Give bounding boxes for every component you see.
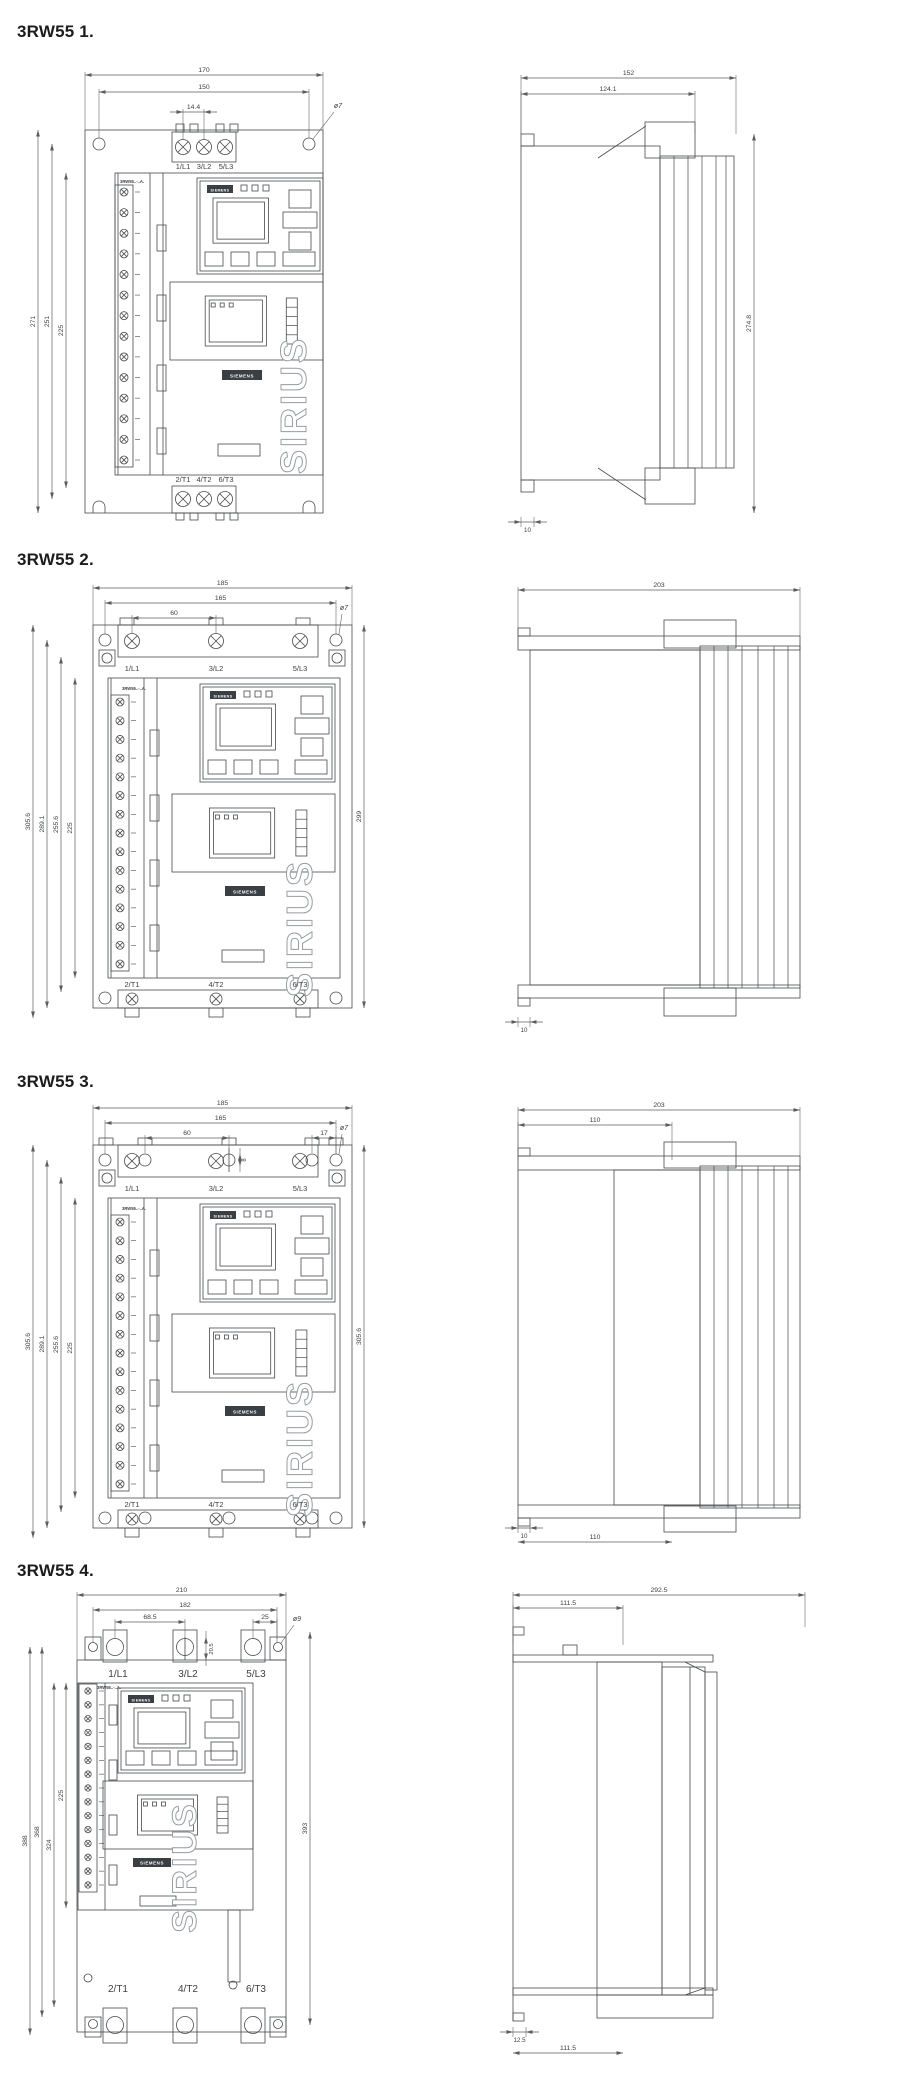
dimension-arrow [362,1145,366,1152]
dim-label: 289.1 [39,1335,46,1352]
dimension-arrow [346,1106,353,1110]
dimension-arrow [689,92,696,96]
dimension-arrow [513,2051,520,2055]
drawing-line [598,468,646,500]
line-terminal-label: 5/L3 [293,664,308,673]
terminal-cover [597,1995,713,2018]
dimension-arrow [31,1532,35,1539]
mounting-hole [139,1512,151,1524]
siemens-badge-label: SIEMENS [214,1214,233,1218]
dimension-arrow [526,2030,533,2034]
status-led [173,1695,179,1701]
status-led [162,1695,168,1701]
dimension-arrow [59,1177,63,1184]
status-led [255,1211,261,1217]
side-lip [513,1627,524,1635]
bottom-slot [222,950,264,962]
device-type-label: 3RW55..-..A. [120,179,144,184]
front-view: 3RW55..-..A.SIEMENSSIEMENSSIRIUS1/L13/L2… [25,580,366,1018]
module-led [220,303,224,307]
dimension-arrow [515,520,522,524]
function-key [208,1280,226,1294]
line-terminal-label: 5/L3 [293,1184,308,1193]
dimension-arrow [666,1540,673,1544]
dimension-arrow [223,1136,230,1140]
dimension-arrow [31,625,35,632]
function-key [205,1751,237,1765]
din-clip [109,1815,117,1835]
status-led [241,185,247,191]
dimension-arrow [85,73,92,77]
section-3rw55-1: 3RW55 1. 3RW55..-..A.SIEMENSSIEMENSSIRIU… [0,20,900,540]
mounting-hole [223,1512,235,1524]
dim-label: 111.5 [560,2045,576,2052]
status-led [244,1211,250,1217]
dimension-arrow [59,657,63,664]
mounting-hole [99,634,111,646]
status-led [266,1211,272,1217]
dimension-arrow [36,130,40,137]
function-key [295,1280,327,1294]
dimension-arrow [31,1012,35,1019]
mounting-hole [102,1173,112,1183]
hole-diameter-label: ø9 [293,1616,301,1623]
dimension-arrow [145,1136,152,1140]
siemens-badge-label: SIEMENS [140,1860,164,1865]
front-view: 3RW55..-..A.SIEMENSSIEMENSSIRIUS1/L13/L2… [25,1100,366,1538]
dimension-arrow [799,1593,806,1597]
display-screen-inner [220,708,271,746]
dimension-arrow [518,1123,525,1127]
nav-button [295,1238,329,1254]
siemens-badge-label: SIEMENS [233,889,257,894]
dim-label: 165 [215,595,227,602]
load-terminal-label: 4/T2 [178,1984,198,1995]
nav-button [301,1258,323,1276]
terminal-tab [125,1528,139,1537]
load-terminal-label: 6/T3 [246,1984,266,1995]
mounting-notch [303,501,315,513]
dim-label: 124.1 [599,86,616,93]
load-terminal-label: 4/T2 [196,475,211,484]
module-led [153,1802,157,1806]
siemens-badge-label: SIEMENS [233,1409,257,1414]
vent-slider [217,1797,228,1833]
dim-label: 14.4 [187,104,200,111]
terminal-tab [296,1528,310,1537]
dim-label: 255.6 [53,816,60,833]
side-view: 20310 [505,582,800,1034]
dimension-arrow [530,1020,537,1024]
mounting-hole [84,1974,92,1982]
dimension-arrow [93,1608,100,1612]
siemens-badge-label: SIEMENS [230,373,254,378]
nav-button [301,738,323,756]
dimension-arrow [59,1506,63,1513]
dimension-arrow [64,1683,68,1690]
module-led [224,815,228,819]
side-lip [518,628,530,636]
line-terminal-label: 5/L3 [219,162,234,171]
mounting-hole [332,1173,342,1183]
dimension-arrow [362,1522,366,1529]
dim-label: 20.5 [209,1643,215,1654]
dimension-arrow [105,1121,112,1125]
function-key [205,252,223,266]
hmi-panel-frame [200,181,320,271]
technical-drawing: 3RW55..-..A.SIEMENSSIEMENSSIRIUS1/L13/L2… [0,20,900,540]
dim-label: 12.5 [513,2037,526,2044]
dimension-arrow [752,507,756,514]
status-led [184,1695,190,1701]
mounting-hole [245,2017,262,2034]
module-led [215,815,219,819]
heatsink [700,1166,800,1508]
dim-label: 203 [653,582,665,589]
dim-label: 299 [356,811,363,823]
dim-label: 225 [58,1790,65,1802]
terminal-tab [176,513,184,520]
line-terminal-label: 3/L2 [209,664,224,673]
status-led [244,691,250,697]
siemens-badge-label: SIEMENS [211,188,230,192]
sirius-logo: SIRIUS [279,1379,320,1517]
sirius-logo: SIRIUS [279,859,320,997]
din-clip [150,1380,159,1406]
corner-tab [270,2017,286,2037]
line-terminal-label: 3/L2 [197,162,212,171]
function-key [260,1280,278,1294]
dimension-arrow [330,1121,337,1125]
dimension-arrow [50,493,54,500]
function-key [178,1751,196,1765]
mounting-hole [177,2017,194,2034]
dim-label: 368 [34,1826,41,1838]
cable-channel [228,1910,240,1982]
display-screen-inner [217,202,264,239]
drawing-line [598,126,646,158]
dim-label: 60 [170,610,178,617]
load-terminal-label: 2/T1 [175,475,190,484]
terminal-tab [190,513,198,520]
siemens-badge-label: SIEMENS [214,694,233,698]
module-led [211,303,215,307]
rear-rail [705,1672,717,1990]
side-view: 152124.1274.810 [508,70,756,534]
line-terminal-label: 1/L1 [125,664,140,673]
device-type-label: 3RW55..-..A. [122,686,146,691]
dim-label: 203 [653,1102,665,1109]
display-screen [216,1224,275,1270]
module-led [229,303,233,307]
terminal-cover [664,1506,736,1532]
function-key [257,252,275,266]
mounting-hole [102,653,112,663]
dimension-arrow [177,110,184,114]
dimension-arrow [512,1526,519,1530]
status-led [255,691,261,697]
display-screen [213,198,268,243]
terminal-tab [296,1008,310,1017]
side-body [521,146,660,480]
din-clip [157,428,166,454]
dimension-arrow [513,1593,520,1597]
function-key [295,760,327,774]
mounting-hole [330,1154,342,1166]
terminal-cover [645,122,695,158]
drawing-line [685,1988,705,1995]
leader-line [281,1625,294,1643]
dimension-arrow [330,601,337,605]
nav-button [289,232,311,250]
dim-label: 305.6 [25,1333,32,1350]
module-led [233,1335,237,1339]
load-terminal-label: 2/T1 [124,980,139,989]
dim-label: 111.5 [560,1600,576,1607]
dimension-arrow [45,1160,49,1167]
display-screen-inner [138,1712,186,1744]
function-key [234,760,252,774]
dimension-arrow [40,2011,44,2018]
section-3rw55-4: 3RW55 4. 3RW55..-..A.SIEMENSSIEMENSSIRIU… [0,1545,900,2088]
sirius-logo: SIRIUS [273,336,314,474]
load-terminal-label: 6/T3 [292,1500,307,1509]
mounting-hole [330,992,342,1004]
corner-bracket [329,1170,345,1186]
dimension-arrow [308,2019,312,2026]
dim-label: 152 [623,70,635,77]
dimension-arrow [31,1145,35,1152]
dimension-arrow [317,73,324,77]
mounting-hole [107,1639,124,1656]
function-key [231,252,249,266]
dimension-arrow [312,1136,319,1140]
module-led [224,1335,228,1339]
mounting-hole [99,1512,111,1524]
dimension-arrow [362,1002,366,1009]
bottom-slot [222,1470,264,1482]
dimension-arrow [28,2029,32,2036]
dim-label: 185 [217,1100,229,1107]
load-terminal-label: 4/T2 [208,1500,223,1509]
corner-tab [85,2017,101,2037]
technical-drawing: 3RW55..-..A.SIEMENSSIEMENSSIRIUS1/L13/L2… [0,1060,900,1545]
dimension-arrow [204,110,211,114]
front-view: 3RW55..-..A.SIEMENSSIEMENSSIRIUS1/L13/L2… [22,1587,312,2043]
dimension-arrow [45,1522,49,1529]
corner-bracket [99,1170,115,1186]
dimension-arrow [513,1606,520,1610]
dim-label: 170 [198,67,210,74]
dim-label: 305.6 [25,813,32,830]
dimension-arrow [518,1108,525,1112]
dimension-arrow [99,90,106,94]
module-led [233,815,237,819]
dim-label: 210 [176,1587,188,1594]
dimension-arrow [518,1540,525,1544]
display-screen [134,1708,190,1748]
line-terminal-label: 5/L3 [246,1669,266,1680]
dim-label: 25 [261,1614,269,1621]
side-lip [521,134,534,146]
dimension-arrow [617,1606,624,1610]
dimension-arrow [730,76,737,80]
mounting-hole [99,992,111,1004]
corner-tab [270,1637,286,1660]
status-led [263,185,269,191]
terminal-tab [216,513,224,520]
dim-label: 110 [590,1117,601,1124]
vent-slider [296,810,307,856]
terminal-cover [664,620,736,648]
mounting-hole [139,1154,151,1166]
dimension-arrow [280,1593,287,1597]
section-3rw55-2: 3RW55 2. 3RW55..-..A.SIEMENSSIEMENSSIRIU… [0,540,900,1060]
terminal-tab [209,1528,223,1537]
dimension-arrow [73,1492,77,1499]
top-flange [513,1655,713,1662]
device-type-label: 3RW55..-..A. [97,1685,121,1690]
dimension-arrow [73,678,77,685]
function-key [208,760,226,774]
side-body [614,1170,700,1505]
dim-label: 271 [30,316,37,328]
dim-label: 150 [198,84,210,91]
dimension-arrow [36,507,40,514]
bottom-slot [218,444,260,456]
nav-button [301,696,323,714]
line-terminal-label: 3/L2 [178,1669,198,1680]
hole-diameter-label: ø7 [340,1125,349,1132]
module-led [162,1802,166,1806]
terminal-tab [216,124,224,132]
mounting-hole [332,653,342,663]
mounting-hole [330,1512,342,1524]
line-terminal-block [118,625,318,657]
mounting-notch [93,501,105,513]
dimension-arrow [64,482,68,489]
dim-label: 60 [183,1130,191,1137]
leader-line [313,112,334,139]
mounting-hole [107,2017,124,2034]
dimension-arrow [507,2030,514,2034]
heatsink [660,156,734,468]
terminal-tab [125,1008,139,1017]
dimension-arrow [50,144,54,151]
terminal-cover [664,1142,736,1168]
dimension-arrow [52,1683,56,1690]
load-terminal-label: 2/T1 [124,1500,139,1509]
heatsink [700,646,800,988]
nav-button [283,212,317,228]
display-screen-inner [220,1228,271,1266]
dimension-arrow [617,2051,624,2055]
line-terminal-label: 1/L1 [176,162,191,171]
function-key [283,252,315,266]
nav-button [205,1722,239,1738]
hmi-panel-frame [203,687,332,779]
dimension-arrow [308,1632,312,1639]
mounting-hole [274,1643,283,1652]
mounting-hole [93,138,105,150]
load-terminal-label: 2/T1 [108,1984,128,1995]
dimension-arrow [77,1593,84,1597]
dim-label: 17 [320,1130,328,1137]
dimension-arrow [132,616,139,620]
mounting-hole [89,2020,98,2029]
side-view: 292.5111.5111.512.5 [500,1587,805,2055]
nav-button [301,1216,323,1234]
terminal-tab [99,1138,113,1145]
dimension-arrow [179,1620,186,1624]
mounting-hole [303,138,315,150]
mounting-hole [99,1154,111,1166]
dimension-arrow [362,625,366,632]
dimension-arrow [105,601,112,605]
side-lip [513,2013,524,2021]
nav-button [211,1700,233,1718]
side-lip [518,998,530,1006]
side-lip [518,1148,530,1156]
leader-line [339,1134,342,1154]
dimension-arrow [330,1136,337,1140]
front-view: 3RW55..-..A.SIEMENSSIEMENSSIRIUS1/L13/L2… [30,67,343,520]
dim-label: 274.8 [746,315,753,332]
dim-label: 324 [46,1839,53,1851]
dimension-arrow [204,1654,208,1661]
mounting-hole [89,1643,98,1652]
dim-label: 255.6 [53,1336,60,1353]
sirius-logo: SIRIUS [166,1801,204,1932]
dimension-arrow [271,1620,278,1624]
dim-label: 8 [242,1158,248,1161]
line-terminal-label: 1/L1 [125,1184,140,1193]
din-clip [109,1760,117,1780]
module-led [215,1335,219,1339]
dim-label: 305.6 [356,1328,363,1345]
module-screen-inner [213,812,270,854]
dimension-arrow [40,1647,44,1654]
load-terminal-label: 4/T2 [208,980,223,989]
dimension-arrow [52,2001,56,2008]
dimension-arrow [253,1620,260,1624]
dimension-drawings-page: 3RW55 1. 3RW55..-..A.SIEMENSSIEMENSSIRIU… [0,0,900,2088]
dimension-arrow [115,1620,122,1624]
terminal-tab [230,513,238,520]
din-clip [150,730,159,756]
dim-label: 225 [58,325,65,337]
status-led [252,185,258,191]
bottom-flange [513,1988,713,1995]
corner-bracket [329,650,345,666]
hmi-panel-frame [203,1207,332,1299]
dim-label: 251 [44,316,51,328]
vent-slider [296,1330,307,1376]
dim-label: 10 [524,527,531,534]
dimension-arrow [521,76,528,80]
dimension-arrow [521,92,528,96]
leader-line [339,614,342,634]
side-view: 20311011010 [505,1102,800,1544]
top-bump [563,1645,577,1655]
dim-label: 225 [67,1342,74,1354]
function-key [260,760,278,774]
dimension-arrow [794,588,801,592]
module-screen-inner [209,300,262,342]
side-lip [518,1518,530,1526]
load-terminal-label: 6/T3 [292,980,307,989]
din-clip [157,295,166,321]
